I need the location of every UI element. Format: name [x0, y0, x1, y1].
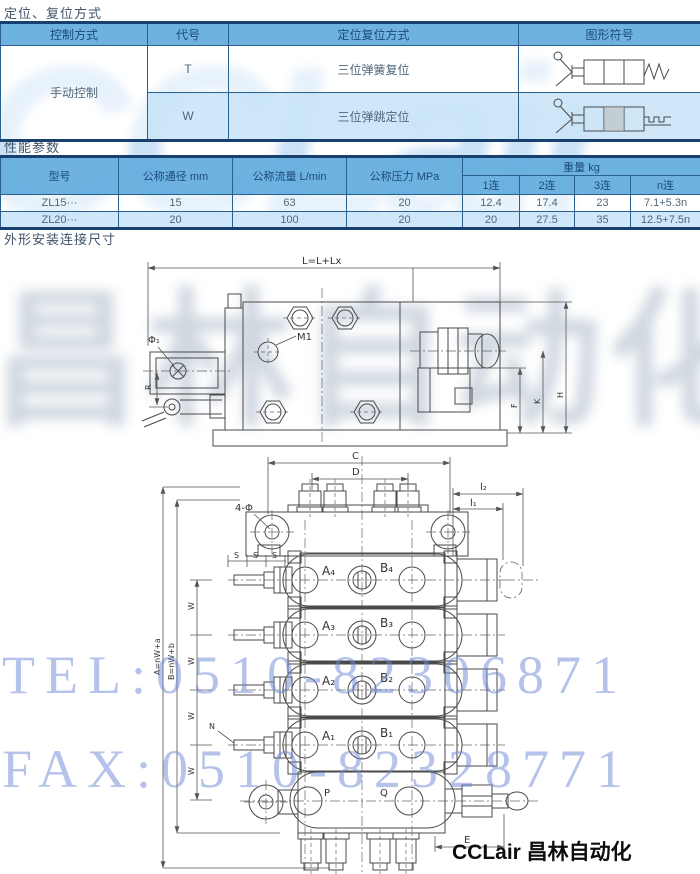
top-view-drawing: C D 4-Φ l₂ — [153, 451, 540, 874]
dim-label-M1: M1 — [297, 332, 312, 343]
table-row-zl15: ZL15··· 15 63 20 12.4 17.4 23 7.1+5.3n — [1, 195, 700, 212]
col-header-weight-3: 3连 — [575, 176, 631, 195]
cell-pressure: 20 — [347, 212, 463, 229]
dim-label-K: K — [533, 398, 542, 404]
dim-label-C: C — [352, 451, 359, 462]
dim-label-l1: l₁ — [470, 498, 477, 509]
dim-label-H: H — [556, 392, 565, 398]
col-header-weight-1: 1连 — [463, 176, 520, 195]
cell-symbol-spring-return — [519, 46, 700, 93]
cell-reset-method: 三位弹跳定位 — [229, 93, 519, 141]
port-label-B2: B₂ — [380, 671, 393, 685]
control-mode-table: 控制方式 代号 定位复位方式 图形符号 手动控制 T 三位弹簧复位 — [0, 21, 700, 142]
port-label-A4: A₄ — [322, 564, 335, 578]
col-header-model: 型号 — [1, 157, 119, 195]
cell-reset-method: 三位弹簧复位 — [229, 46, 519, 93]
cell-flow: 100 — [233, 212, 347, 229]
cell-weight-n: 12.5+7.5n — [631, 212, 700, 229]
cell-weight-n: 7.1+5.3n — [631, 195, 700, 212]
col-header-diameter: 公称通径 mm — [119, 157, 233, 195]
col-header-flow: 公称流量 L/min — [233, 157, 347, 195]
port-label-A3: A₃ — [322, 619, 335, 633]
dim-label-L: L=L+Lx — [302, 256, 341, 267]
cell-weight-1: 20 — [463, 212, 520, 229]
col-header-code: 代号 — [148, 23, 229, 46]
col-header-weight-n: n连 — [631, 176, 700, 195]
dim-label-l2: l₂ — [480, 482, 487, 493]
dim-label-B-equation: B=nW+b — [167, 643, 176, 680]
cell-code: W — [148, 93, 229, 141]
section-title-performance: 性能参数 — [4, 137, 60, 156]
dimension-drawings: L=L+Lx M1 — [0, 250, 700, 874]
dim-label-S: S — [234, 551, 239, 560]
cell-weight-2: 17.4 — [520, 195, 575, 212]
valve-symbol-spring-return-icon — [545, 48, 675, 90]
dim-label-W: W — [187, 767, 196, 775]
col-header-pressure: 公称压力 MPa — [347, 157, 463, 195]
cell-flow: 63 — [233, 195, 347, 212]
page: CCLair 昌林自动化 定位、复位方式 控制方式 代号 定位复位方式 图形符号… — [0, 0, 700, 874]
col-header-symbol: 图形符号 — [519, 23, 700, 46]
dim-label-W: W — [187, 602, 196, 610]
col-header-weight-group: 重量 kg — [463, 157, 700, 176]
dim-label-A-equation: A=nW+a — [153, 638, 162, 675]
cell-weight-2: 27.5 — [520, 212, 575, 229]
table-header-row: 控制方式 代号 定位复位方式 图形符号 — [1, 23, 700, 46]
dim-label-F: F — [510, 403, 519, 408]
col-header-control-method: 控制方式 — [1, 23, 148, 46]
dim-label-D: D — [352, 467, 360, 478]
dim-label-W: W — [187, 712, 196, 720]
section-title-dimensions: 外形安装连接尺寸 — [4, 229, 116, 248]
cell-diameter: 15 — [119, 195, 233, 212]
valve-symbol-detent-icon — [545, 95, 675, 137]
port-label-B3: B₃ — [380, 616, 393, 630]
port-label-B4: B₄ — [380, 561, 393, 575]
table-row: 手动控制 T 三位弹簧复位 — [1, 46, 700, 93]
cell-model: ZL15··· — [1, 195, 119, 212]
cell-model: ZL20··· — [1, 212, 119, 229]
table-row-zl20: ZL20··· 20 100 20 20 27.5 35 12.5+7.5n — [1, 212, 700, 229]
dim-label-W: W — [187, 657, 196, 665]
port-label-B1: B₁ — [380, 726, 393, 740]
dim-label-N: N — [209, 722, 215, 731]
cell-weight-1: 12.4 — [463, 195, 520, 212]
port-label-Q: Q — [380, 788, 388, 799]
cell-weight-3: 35 — [575, 212, 631, 229]
dim-label-phi1: Φ₁ — [148, 335, 160, 346]
table-header-row: 型号 公称通径 mm 公称流量 L/min 公称压力 MPa 重量 kg — [1, 157, 700, 176]
dim-label-S: S — [253, 551, 258, 560]
port-label-A2: A₂ — [322, 674, 335, 688]
cell-pressure: 20 — [347, 195, 463, 212]
side-view-drawing: L=L+Lx M1 — [142, 256, 572, 446]
cell-weight-3: 23 — [575, 195, 631, 212]
port-label-P: P — [324, 788, 330, 799]
dim-label-R: R — [144, 384, 153, 390]
dim-label-4phi: 4-Φ — [235, 503, 253, 514]
cell-diameter: 20 — [119, 212, 233, 229]
cell-code: T — [148, 46, 229, 93]
performance-table: 型号 公称通径 mm 公称流量 L/min 公称压力 MPa 重量 kg 1连 … — [0, 155, 700, 230]
section-title-positioning-reset: 定位、复位方式 — [4, 3, 102, 22]
dim-label-S: S — [272, 551, 277, 560]
footer-brand: CCLair 昌林自动化 — [452, 836, 632, 866]
port-label-A1: A₁ — [322, 729, 335, 743]
col-header-weight-2: 2连 — [520, 176, 575, 195]
cell-control-method: 手动控制 — [1, 46, 148, 141]
col-header-reset-method: 定位复位方式 — [229, 23, 519, 46]
cell-symbol-detent — [519, 93, 700, 141]
